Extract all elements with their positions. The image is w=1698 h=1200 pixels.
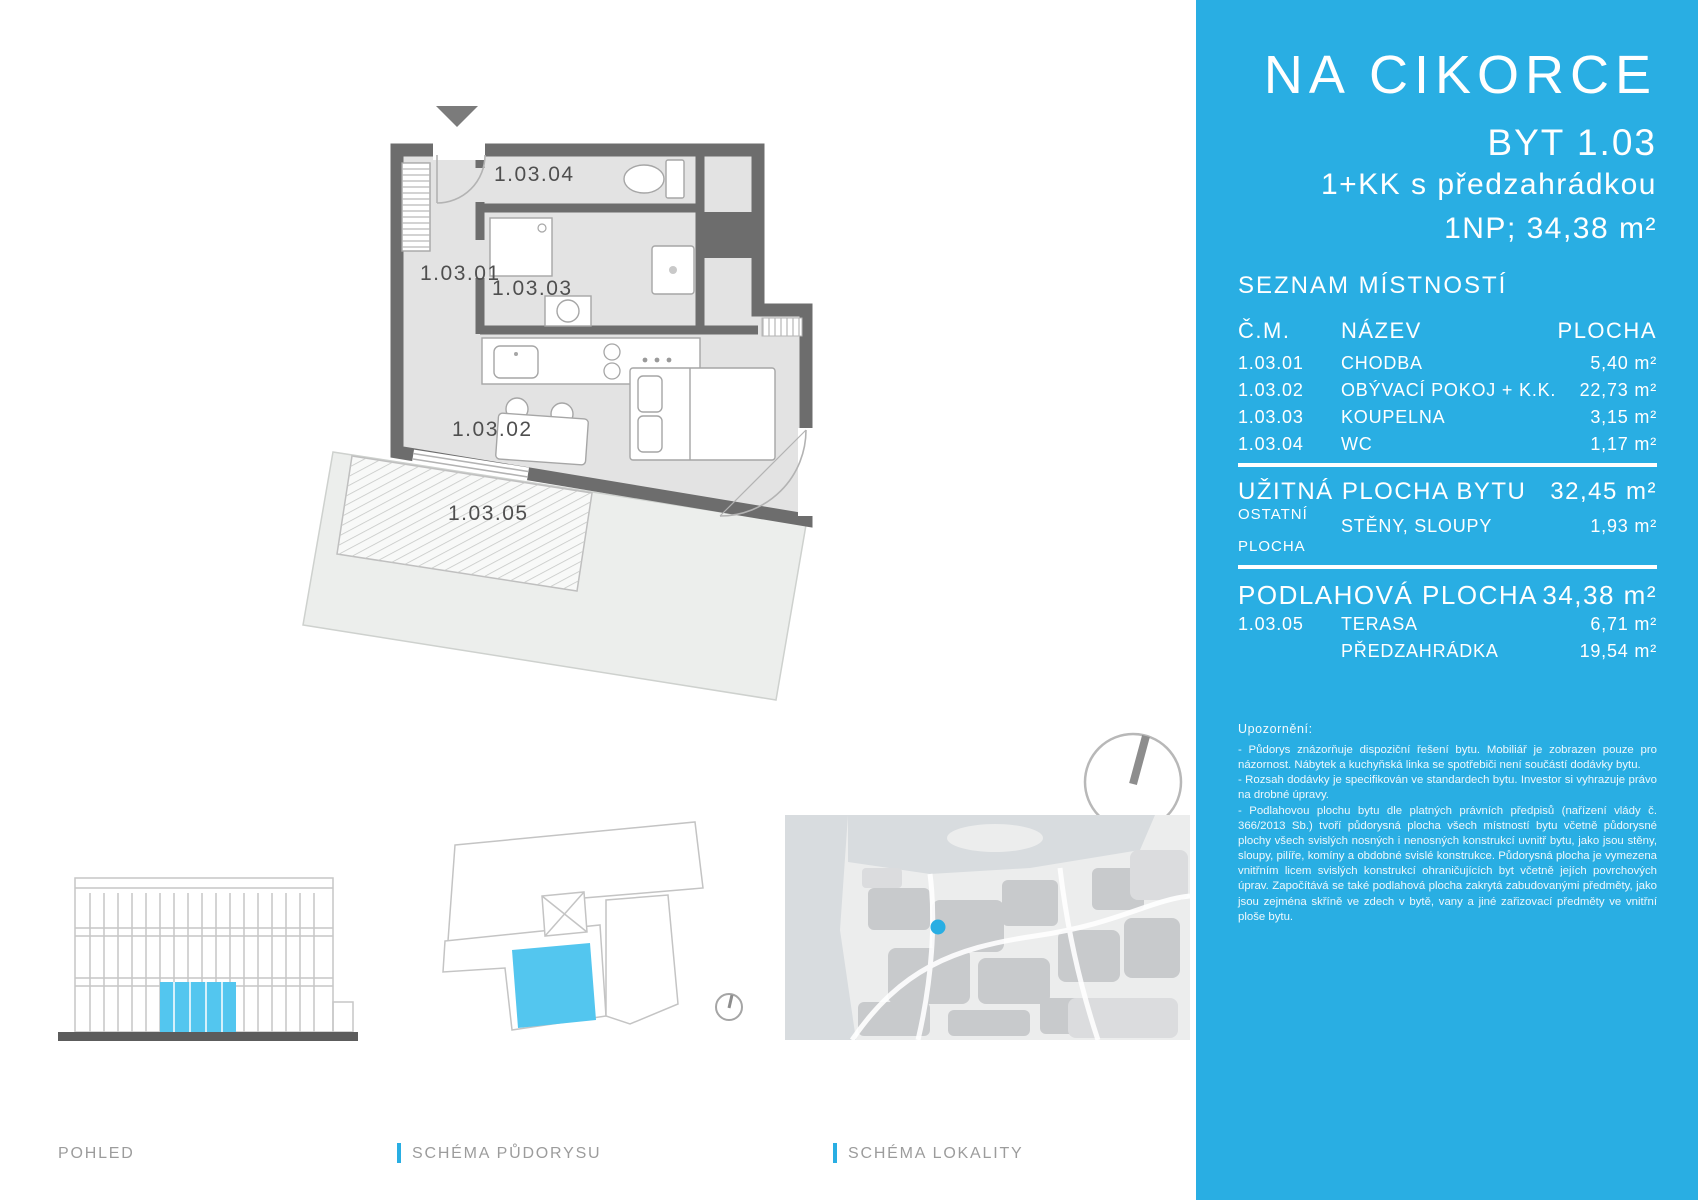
notice-paragraph: - Rozsah dodávky je specifikován ve stan… [1238, 773, 1657, 803]
room-area: 6,71 m² [1590, 614, 1657, 635]
site-plan-diagram [443, 822, 742, 1030]
entry-opening [433, 140, 485, 160]
room-area: 19,54 m² [1580, 641, 1657, 662]
col-name: NÁZEV [1341, 318, 1422, 344]
caption-tick [397, 1143, 401, 1163]
caption-tick [833, 1143, 837, 1163]
unit-code: BYT 1.03 [1216, 122, 1657, 164]
other-area-label1: OSTATNÍ [1238, 506, 1308, 523]
caption-locality: SCHÉMA LOKALITY [848, 1145, 1024, 1163]
ground-line [58, 1032, 358, 1041]
room-num: 1.03.01 [1238, 353, 1304, 374]
unit-type: 1+KK s předzahrádkou [1216, 168, 1657, 202]
room-area: 5,40 m² [1590, 353, 1657, 374]
room-name: PŘEDZAHRÁDKA [1341, 641, 1499, 662]
floor-plan [303, 106, 814, 700]
elevation-diagram [58, 878, 358, 1041]
locality-map [785, 815, 1190, 1040]
location-dot [931, 920, 946, 935]
floor-area-value: 34,38 m² [1542, 580, 1657, 611]
highlighted-unit-siteplan [512, 943, 596, 1028]
notice-paragraph: - Půdorys znázorňuje dispoziční řešení b… [1238, 743, 1657, 773]
highlighted-unit-elevation [160, 982, 236, 1032]
room-name: WC [1341, 434, 1373, 455]
room-num: 1.03.05 [1238, 614, 1304, 635]
stairwell-square [542, 892, 587, 936]
notice-heading: Upozornění: [1238, 722, 1313, 736]
caption-elevation: POHLED [58, 1145, 135, 1163]
room-area: 1,17 m² [1590, 434, 1657, 455]
other-area-label2: PLOCHA [1238, 538, 1306, 555]
room-name: CHODBA [1341, 353, 1423, 374]
project-title: NA CIKORCE [1216, 44, 1657, 106]
room-name: TERASA [1341, 614, 1418, 635]
usable-area-value: 32,45 m² [1550, 478, 1657, 506]
room-label-living: 1.03.02 [452, 418, 533, 442]
caption-site-plan: SCHÉMA PŮDORYSU [412, 1145, 601, 1163]
building-photo-frame [1240, 902, 1660, 1157]
col-area: PLOCHA [1558, 318, 1657, 344]
shaft [702, 212, 754, 258]
room-list-heading: SEZNAM MÍSTNOSTÍ [1238, 272, 1507, 300]
radiator [762, 318, 802, 336]
room-num: 1.03.03 [1238, 407, 1304, 428]
room-label-wc: 1.03.04 [494, 163, 575, 187]
room-name: KOUPELNA [1341, 407, 1445, 428]
wardrobe [402, 163, 430, 251]
divider-rule [1238, 565, 1657, 569]
room-label-terrace: 1.03.05 [448, 502, 529, 526]
washbasin [652, 246, 694, 294]
other-area-name: STĚNY, SLOUPY [1341, 516, 1492, 537]
room-area: 3,15 m² [1590, 407, 1657, 428]
other-area-value: 1,93 m² [1590, 516, 1657, 537]
floor-area-label: PODLAHOVÁ PLOCHA [1238, 580, 1538, 611]
col-num: Č.M. [1238, 318, 1290, 344]
divider-rule [1238, 463, 1657, 467]
room-num: 1.03.04 [1238, 434, 1304, 455]
room-name: OBÝVACÍ POKOJ + K.K. [1341, 380, 1556, 401]
bed [630, 368, 775, 460]
room-num: 1.03.02 [1238, 380, 1304, 401]
info-panel: NA CIKORCE BYT 1.03 1+KK s předzahrádkou… [1196, 0, 1698, 1200]
room-area: 22,73 m² [1580, 380, 1657, 401]
room-label-bath: 1.03.03 [492, 277, 573, 301]
notice-text: - Půdorys znázorňuje dispoziční řešení b… [1238, 743, 1657, 925]
usable-area-label: UŽITNÁ PLOCHA BYTU [1238, 478, 1526, 506]
north-arrow-icon [436, 106, 478, 127]
siteplan-compass-icon [716, 994, 742, 1020]
unit-floor-area: 1NP; 34,38 m² [1216, 212, 1657, 246]
room-label-hall: 1.03.01 [420, 262, 501, 286]
